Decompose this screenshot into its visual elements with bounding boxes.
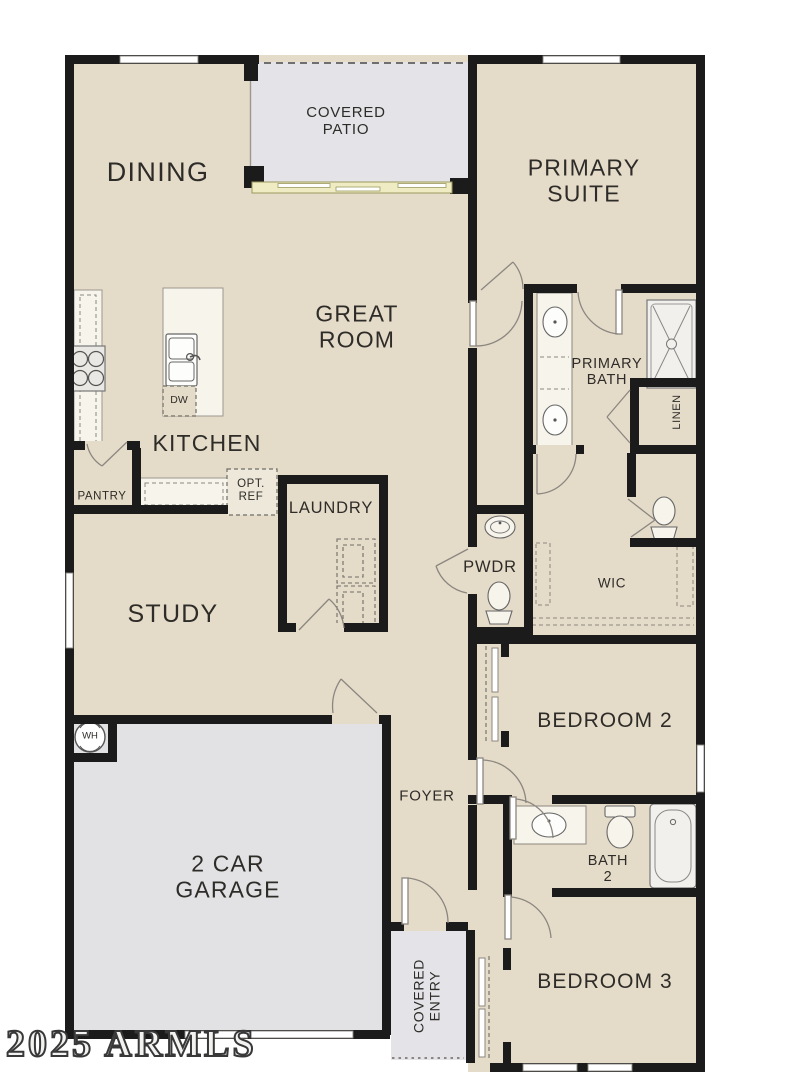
label-covered-entry: COVERED ENTRY: [411, 959, 442, 1033]
label-pwdr: PWDR: [463, 558, 517, 576]
room-foyer: [390, 715, 477, 930]
kitchen-counter-lower: [140, 478, 228, 510]
label-wic: WIC: [598, 575, 626, 590]
sliding-glass-door: [252, 182, 452, 193]
toilet-powder-icon: [486, 582, 512, 624]
label-garage: 2 CAR GARAGE: [175, 851, 280, 903]
island-sink-icon: [166, 334, 200, 386]
floorplan: DINING COVERED PATIO PRIMARY SUITE GREAT…: [0, 0, 800, 1092]
armls-watermark: 2025 ARMLS: [6, 1022, 257, 1066]
label-pantry: PANTRY: [77, 491, 126, 504]
bath2-vanity: [514, 806, 586, 844]
windows: [66, 56, 704, 1071]
washer-dryer-icons: [337, 539, 375, 630]
toilet-bath2-icon: [605, 806, 635, 848]
label-study: STUDY: [128, 600, 219, 628]
label-foyer: FOYER: [399, 789, 454, 806]
shower-icon: [647, 300, 696, 388]
bedroom2-closet: [486, 646, 498, 742]
powder-sink-icon: [485, 516, 515, 538]
label-primary-bath: PRIMARY BATH: [572, 356, 643, 388]
label-great-room: GREAT ROOM: [315, 301, 398, 353]
room-fills: [65, 55, 696, 1072]
label-dining: DINING: [107, 157, 210, 187]
label-dishwasher: DW: [170, 395, 188, 407]
label-water-heater: WH: [82, 732, 98, 743]
stove-icon: [69, 346, 105, 391]
kitchen-counter-left: [74, 290, 102, 448]
label-bedroom-3: BEDROOM 3: [537, 970, 672, 994]
label-laundry: LAUNDRY: [289, 499, 373, 517]
bathtub-icon: [650, 804, 696, 888]
label-opt-ref: OPT. REF: [237, 478, 265, 504]
label-kitchen: KITCHEN: [152, 431, 261, 457]
label-bath-2: BATH 2: [588, 853, 629, 885]
label-bedroom-2: BEDROOM 2: [537, 709, 672, 733]
label-primary-suite: PRIMARY SUITE: [528, 155, 640, 207]
primary-vanity: [537, 293, 572, 453]
toilet-primary-icon: [651, 497, 677, 541]
walls: [65, 55, 705, 1072]
bedroom3-closet: [479, 956, 489, 1058]
label-linen: LINEN: [671, 394, 683, 429]
label-covered-patio: COVERED PATIO: [306, 105, 385, 139]
